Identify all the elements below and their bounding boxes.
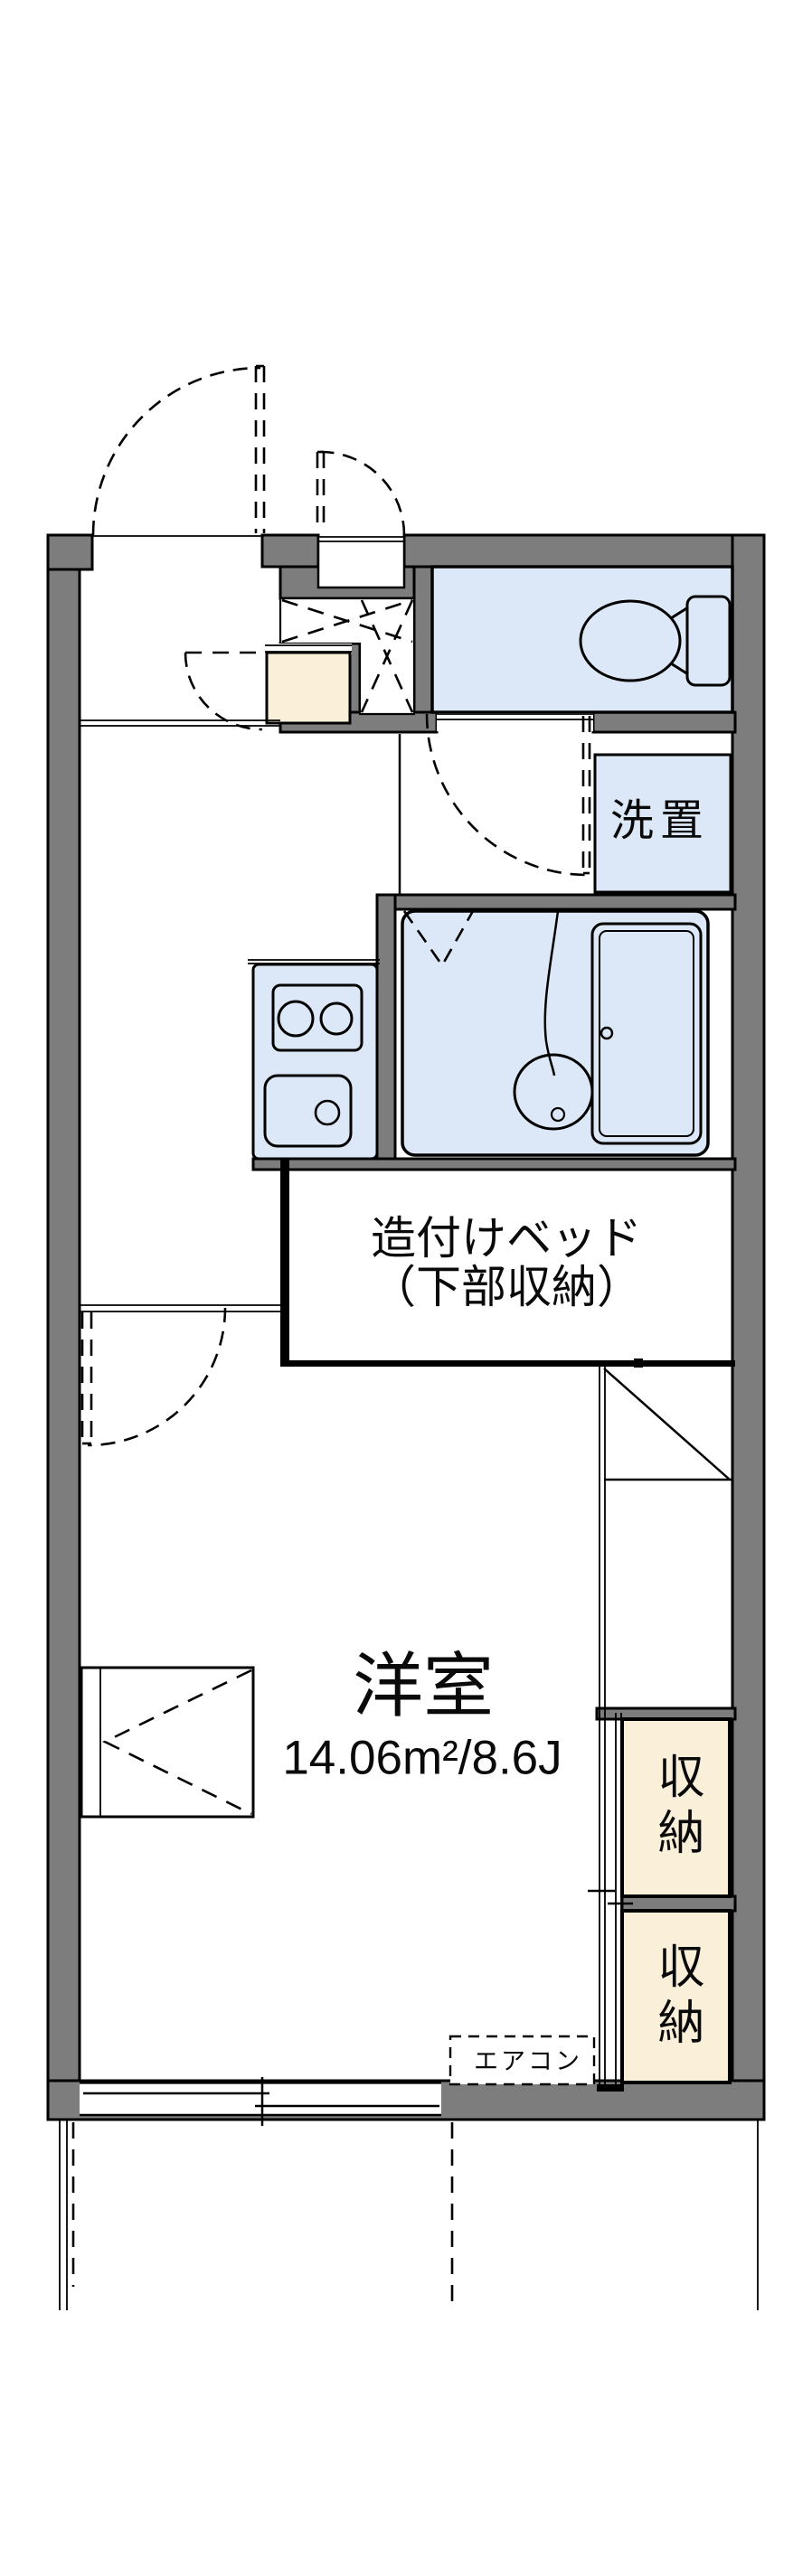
room-area-label: 14.06m²/8.6J	[282, 1735, 562, 1782]
built-in-bed-label: 造付けベッド	[371, 1216, 642, 1261]
bathroom	[402, 911, 708, 1155]
shoe-cabinet	[265, 644, 352, 723]
storage-lower-label: 収納	[653, 1941, 700, 2054]
aircon-label: エアコン	[474, 2050, 582, 2074]
niche-door-swing	[317, 452, 404, 535]
bed-storage-note-label: （下部収納）	[371, 1264, 642, 1310]
kitchen	[248, 960, 380, 1159]
room-name-label: 洋室	[353, 1650, 494, 1721]
toilet-icon	[581, 597, 730, 685]
balcony-lines	[60, 2120, 758, 2310]
floorplan: 洗置 造付けベッド （下部収納） 洋室 14.06m²/8.6J 収納 収納 エ…	[0, 0, 812, 2576]
entrance-niche	[318, 536, 404, 588]
toilet-room	[432, 567, 732, 712]
storage-upper-label: 収納	[653, 1752, 700, 1864]
entrance-door-swing	[92, 366, 264, 536]
washstand-label: 洗置	[610, 800, 710, 843]
